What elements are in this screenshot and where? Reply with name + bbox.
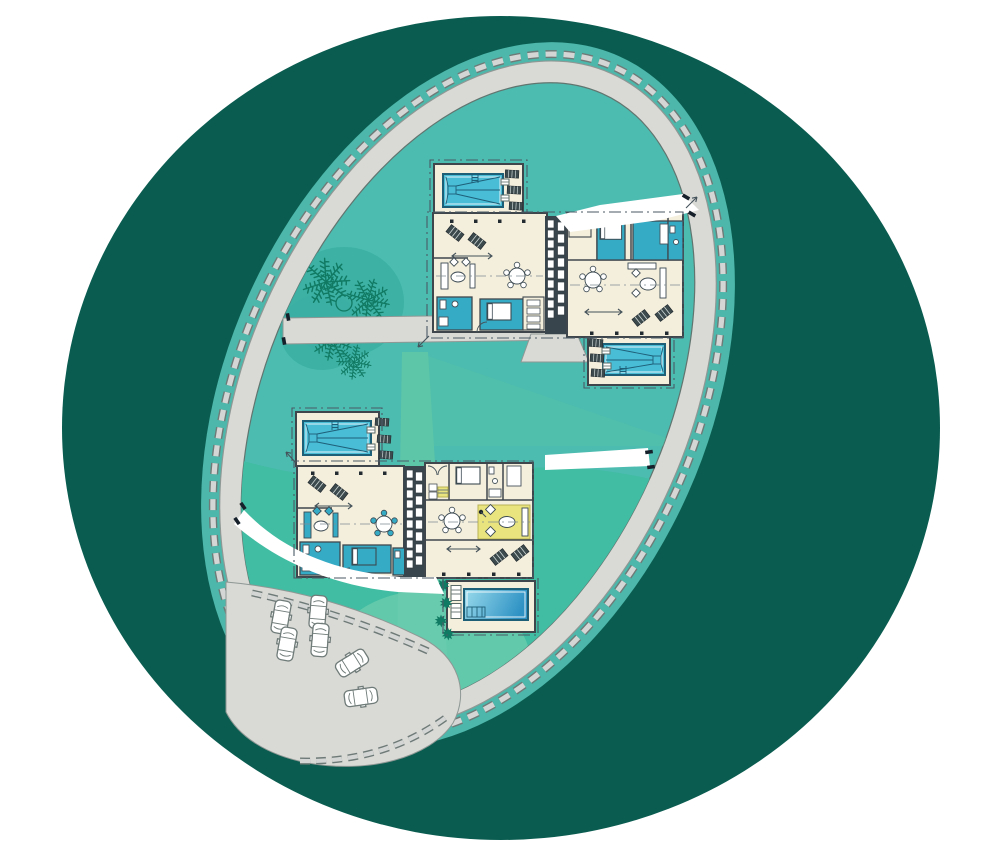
poolside-lounger (379, 451, 393, 460)
white-lounger (451, 604, 461, 619)
side-table (603, 363, 611, 369)
ne-pool (603, 344, 665, 375)
bed (456, 467, 480, 484)
side-table (367, 444, 375, 450)
poolside-lounger (589, 339, 603, 348)
nw-pool (443, 174, 503, 207)
north-complex-apron (521, 334, 589, 362)
poolside-lounger (505, 170, 519, 178)
poolside-lounger (507, 186, 521, 194)
side-table (501, 179, 509, 185)
site-plan-figure (0, 0, 999, 842)
sw-pool (303, 421, 371, 455)
bed (660, 224, 668, 244)
side-table (602, 348, 610, 354)
side-table (501, 195, 509, 201)
poolside-lounger (591, 369, 605, 378)
se-pool (464, 589, 528, 620)
poolside-lounger (377, 435, 391, 444)
poolside-lounger (590, 354, 604, 363)
poolside-lounger (509, 202, 523, 210)
bed (352, 548, 376, 565)
bed (487, 303, 511, 320)
bed (507, 466, 521, 486)
white-lounger (451, 586, 461, 601)
kitchen-unit (438, 487, 448, 497)
side-table (367, 427, 375, 433)
site-plan-svg (0, 0, 999, 842)
